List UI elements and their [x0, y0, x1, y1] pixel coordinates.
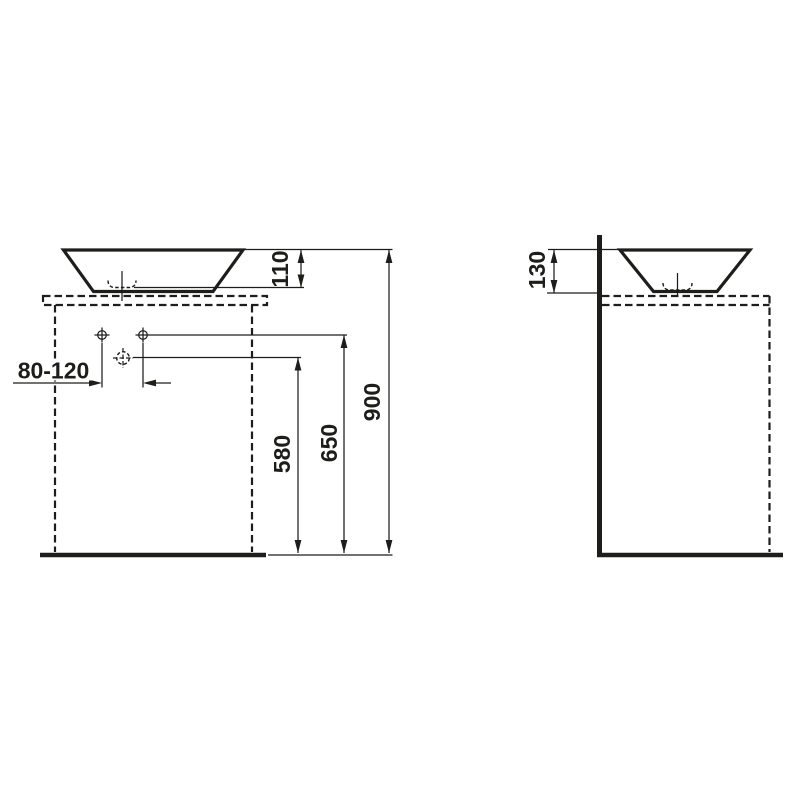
- technical-drawing-page: 80-120 110 580 650: [0, 0, 800, 800]
- arrowhead-up: [298, 250, 305, 263]
- arrowhead-down: [298, 275, 305, 288]
- arrowhead-down: [386, 540, 393, 553]
- arrowhead-down: [295, 540, 302, 553]
- tap-hole-mark-right: [136, 328, 151, 343]
- dimension-label-bowl-height-side: 130: [524, 251, 550, 289]
- waste-outlet-mark: [113, 348, 133, 368]
- technical-drawing: 80-120 110 580 650: [0, 0, 800, 800]
- dimension-label-tap-hole-spacing: 80-120: [18, 358, 90, 384]
- countertop-outline: [43, 296, 267, 305]
- arrowhead-left: [143, 380, 156, 387]
- arrowhead-down: [341, 540, 348, 553]
- dimension-waste-height: 580: [269, 358, 301, 554]
- arrowhead-up: [295, 358, 302, 371]
- dimension-total-height: 900: [359, 250, 392, 553]
- cabinet-outline: [55, 305, 252, 552]
- side-view: 130: [524, 235, 783, 555]
- dimension-bowl-height-side: 130: [524, 250, 557, 293]
- arrowhead-up: [551, 250, 558, 263]
- dimension-label-tap-hole-height: 650: [316, 424, 342, 462]
- dimension-label-total-height: 900: [359, 383, 385, 421]
- countertop-outline-side: [602, 296, 770, 305]
- tap-hole-mark-left: [95, 328, 110, 343]
- arrowhead-up: [341, 335, 348, 348]
- basin-side-outline: [620, 250, 750, 292]
- dimension-tap-hole-height: 650: [316, 335, 347, 553]
- arrowhead-right: [89, 380, 102, 387]
- arrowhead-up: [386, 250, 393, 263]
- dimension-bowl-height: 110: [267, 250, 304, 288]
- arrowhead-down: [551, 280, 558, 293]
- basin-front-outline: [64, 250, 244, 292]
- dimension-label-waste-height: 580: [269, 435, 295, 473]
- dimension-tap-hole-spacing: 80-120: [13, 358, 171, 387]
- front-view: 80-120 110 580 650: [13, 250, 393, 556]
- dimension-label-bowl-height: 110: [267, 250, 293, 287]
